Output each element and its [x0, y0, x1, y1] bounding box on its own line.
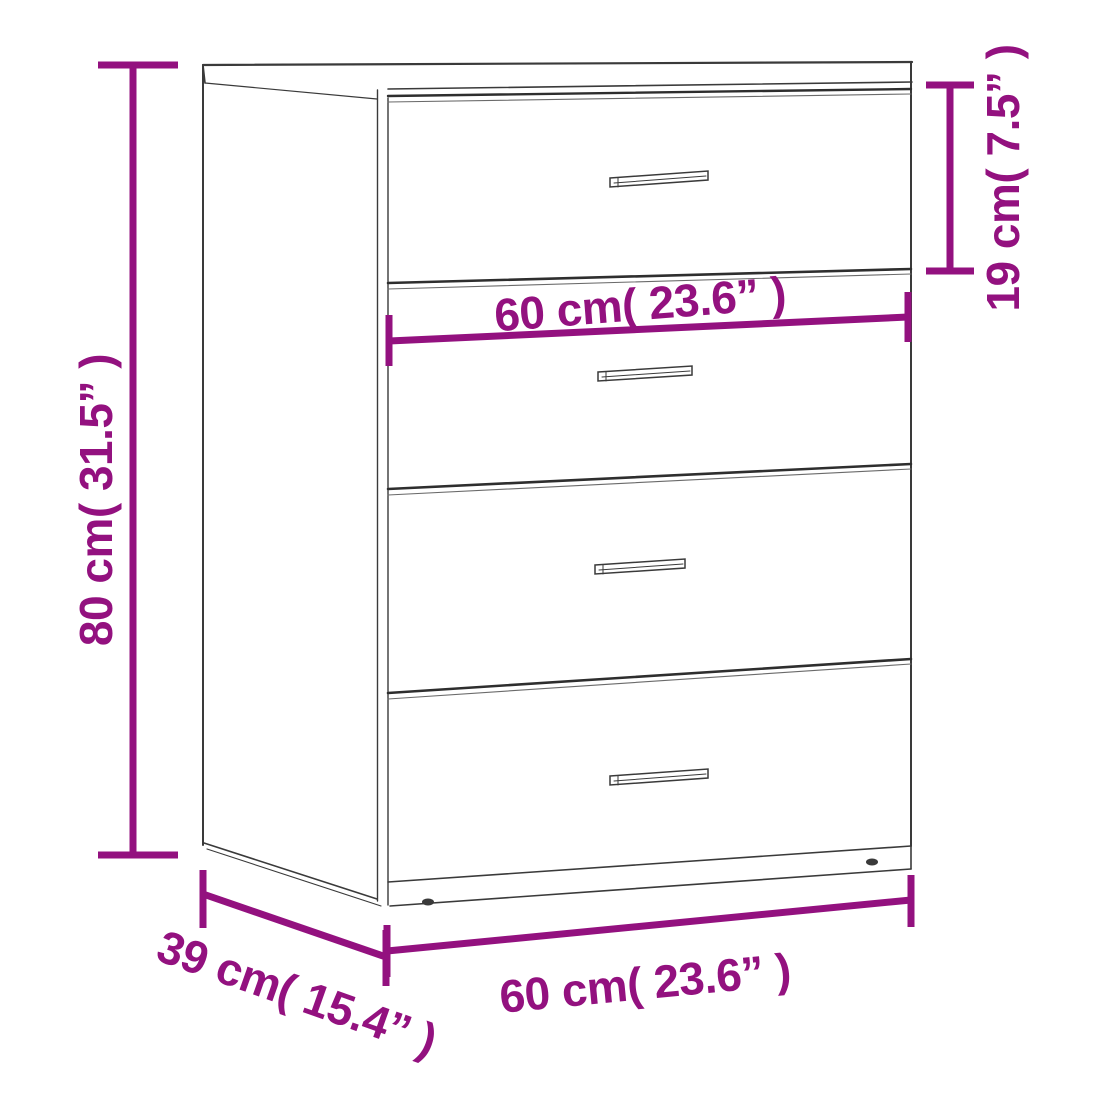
cabinet-base: [204, 843, 911, 906]
height-dimension-label: 80 cm( 31.5” ): [73, 354, 119, 646]
drawer-2-handle: [598, 366, 692, 381]
drawer-1-top-edge: [388, 89, 911, 102]
cabinet-edges: [203, 62, 911, 905]
cabinet-foot-right: [866, 859, 878, 866]
drawer-divider-3: [388, 659, 911, 699]
top-drawer-dimension-label: 19 cm( 7.5” ): [980, 44, 1026, 311]
top-drawer-dimension-line: [926, 85, 974, 271]
dimension-lines: [98, 65, 974, 986]
drawer-1-handle: [610, 171, 708, 187]
drawer-divider-2: [388, 464, 911, 495]
cabinet-foot-left: [422, 899, 434, 906]
drawer-3-handle: [595, 559, 685, 574]
dimension-diagram: 80 cm( 31.5” ) 19 cm( 7.5” ) 60 cm( 23.6…: [0, 0, 1100, 1100]
cabinet-outline: [203, 62, 912, 906]
drawer-4-handle: [610, 769, 708, 785]
